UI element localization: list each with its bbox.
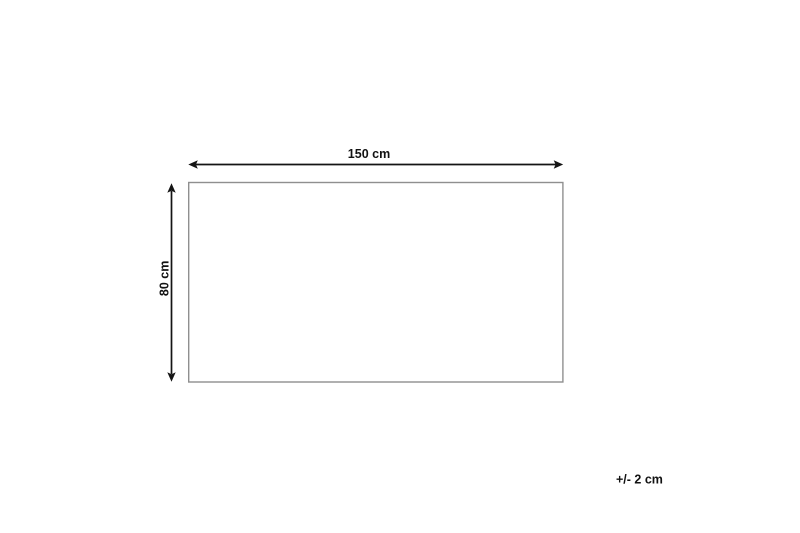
svg-text:150 cm: 150 cm — [348, 147, 390, 161]
svg-text:80 cm: 80 cm — [158, 261, 172, 296]
svg-text:+/- 2 cm: +/- 2 cm — [616, 473, 663, 487]
